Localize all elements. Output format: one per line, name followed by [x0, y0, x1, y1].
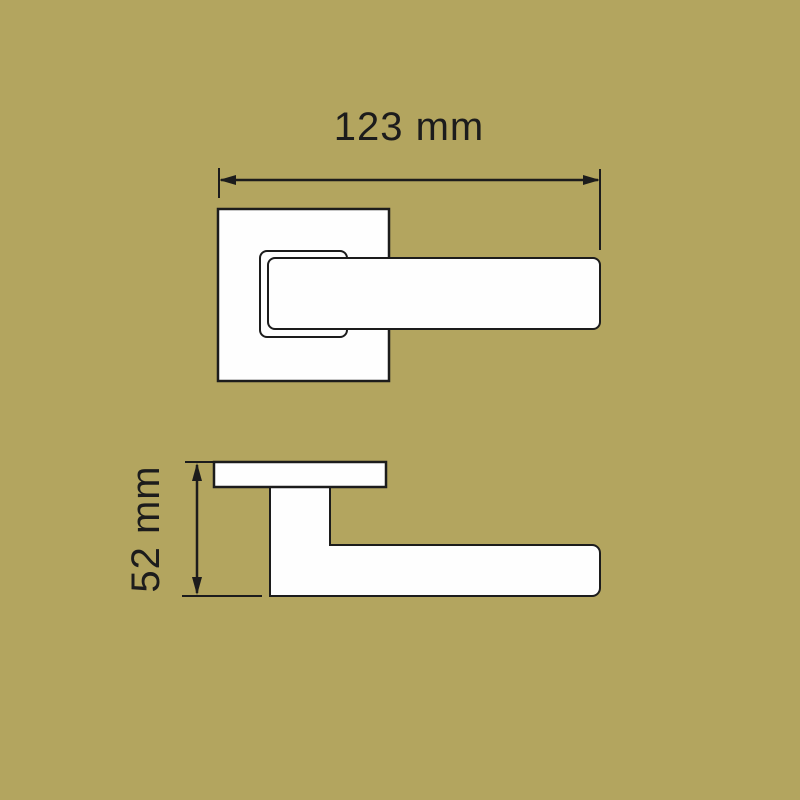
rose-plate-side-view	[214, 462, 386, 487]
technical-drawing: 123 mm 52 mm	[0, 0, 800, 800]
drawing-canvas: 123 mm 52 mm	[0, 0, 800, 800]
width-dimension-label: 123 mm	[334, 105, 485, 149]
lever-top-view	[268, 258, 600, 329]
height-dimension-label: 52 mm	[124, 465, 168, 592]
